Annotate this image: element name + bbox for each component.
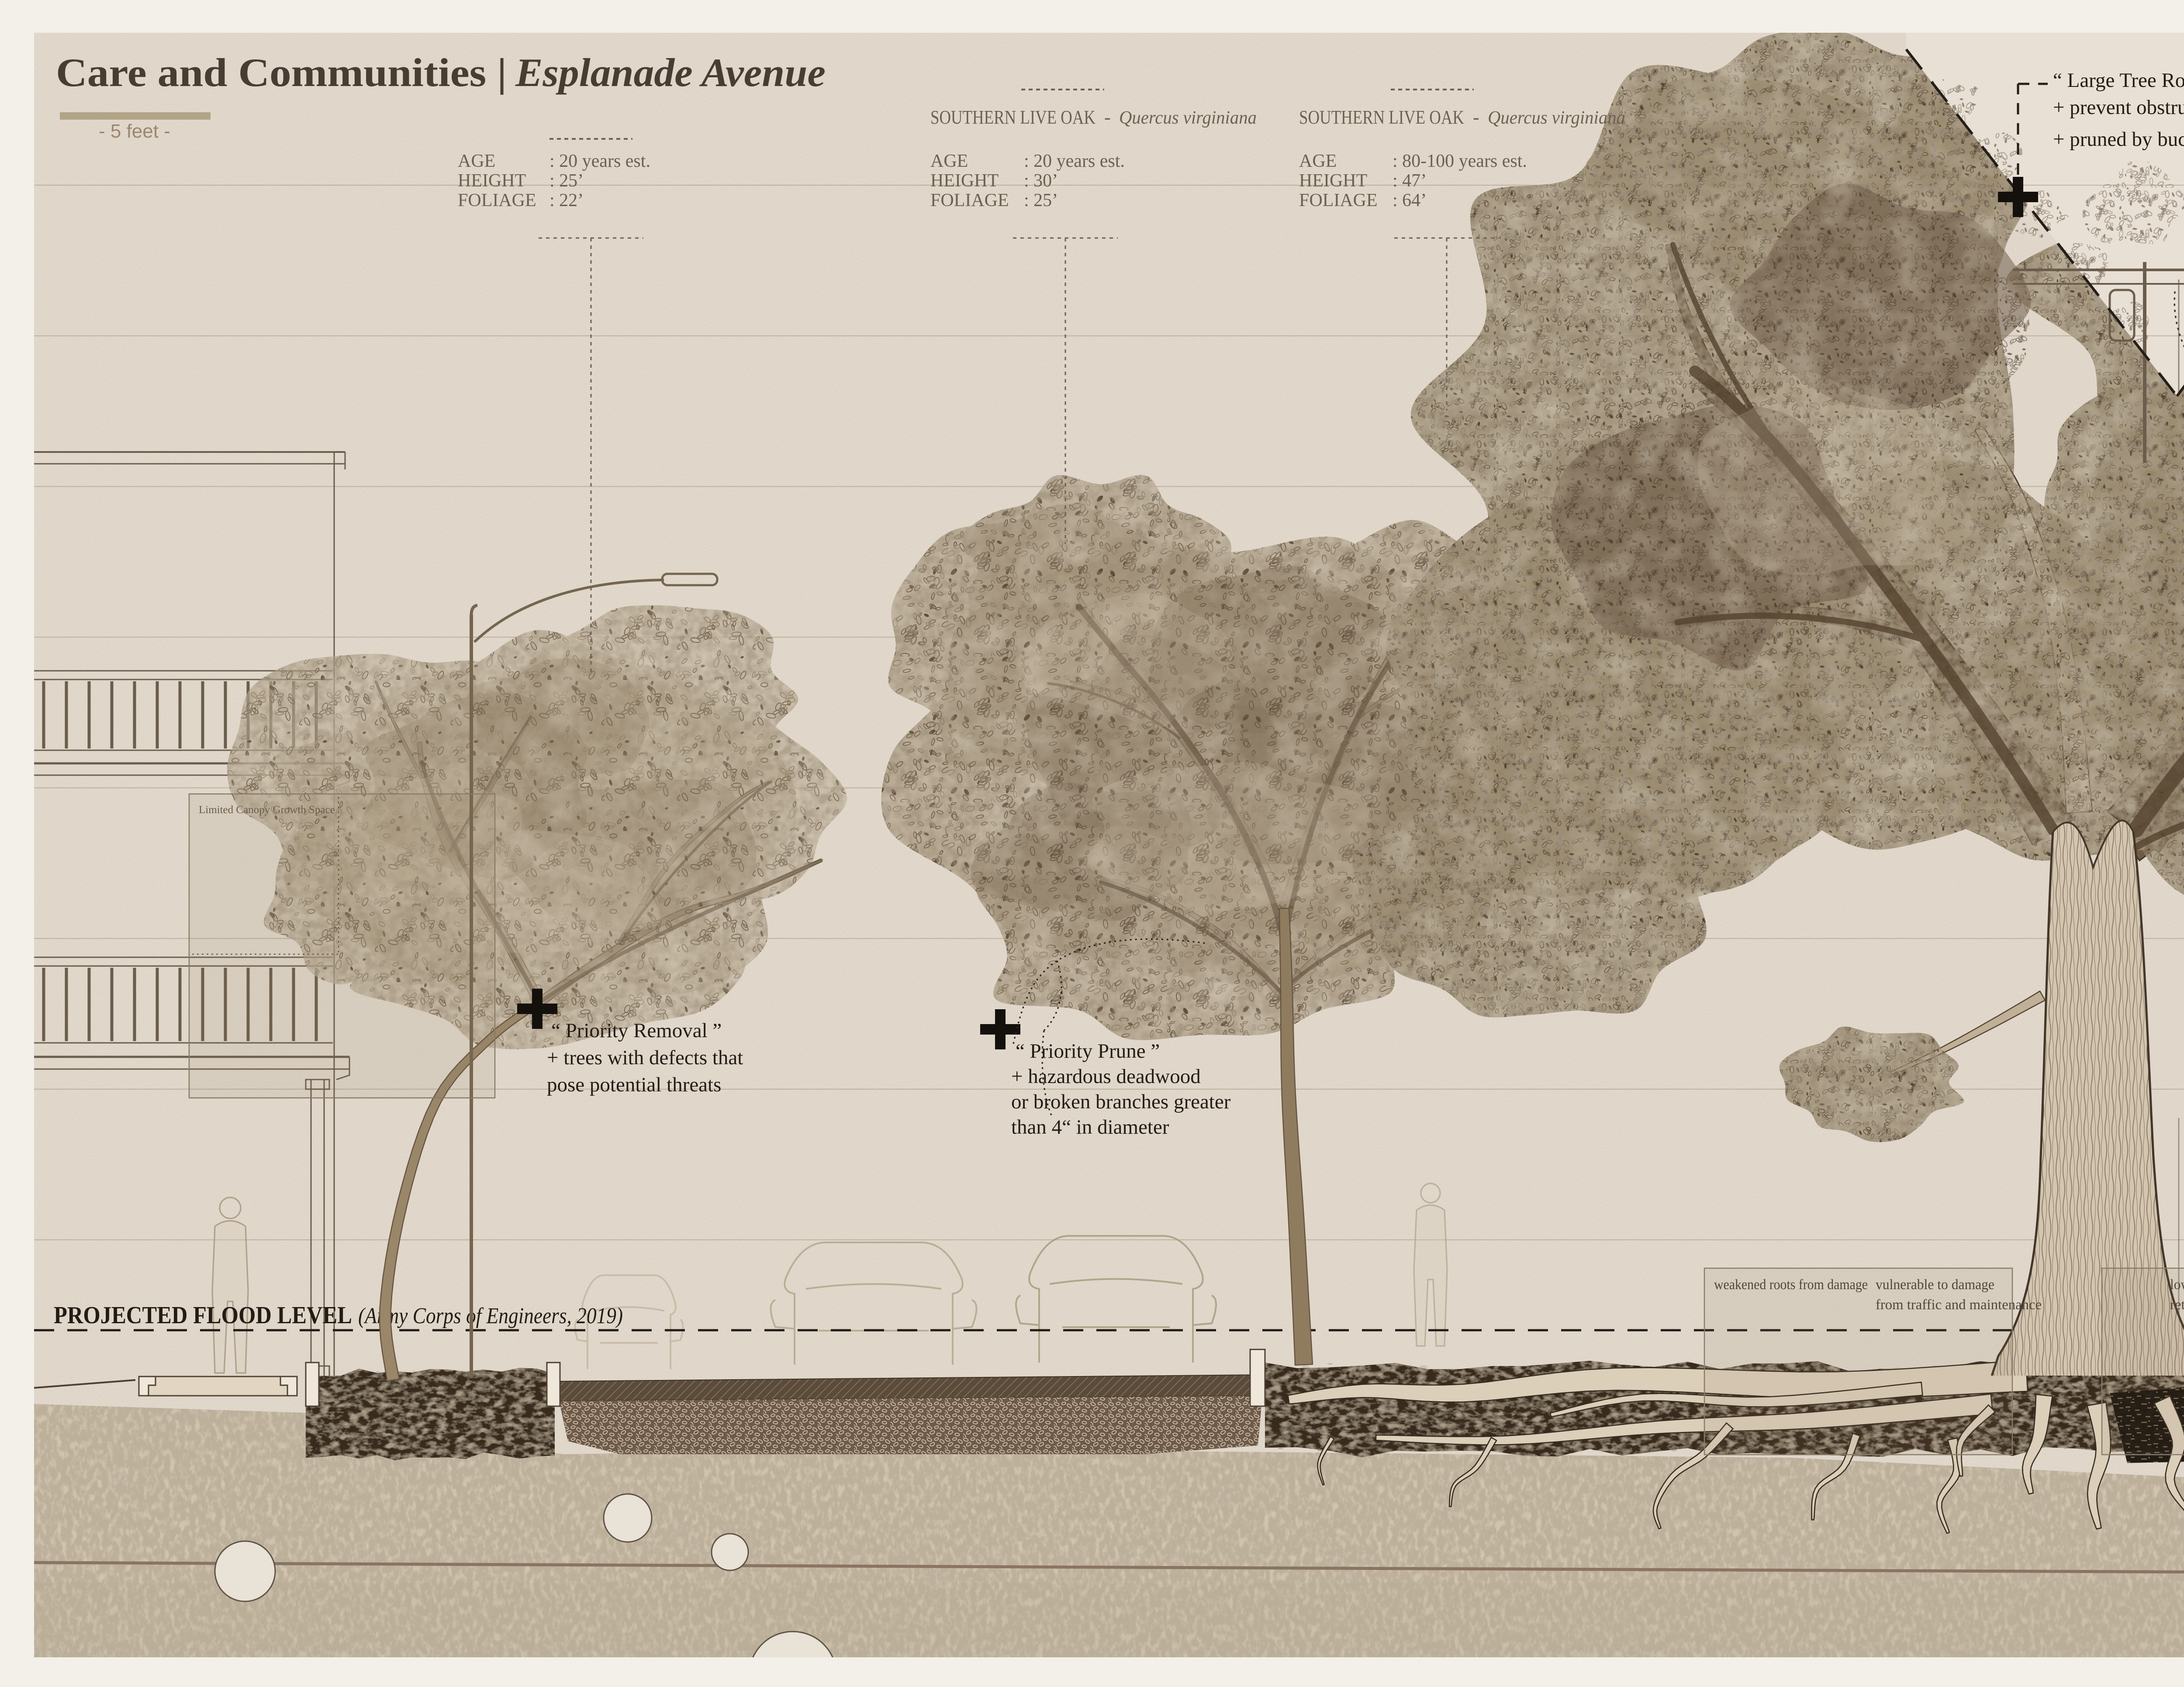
svg-text:: 30’: : 30’ bbox=[1024, 171, 1058, 191]
svg-text:Quercus virginiana: Quercus virginiana bbox=[1488, 108, 1625, 128]
svg-text:: 20 years est.: : 20 years est. bbox=[1024, 151, 1125, 171]
svg-text:or broken branches greater: or broken branches greater bbox=[1011, 1090, 1231, 1113]
svg-text:SOUTHERN LIVE OAK: SOUTHERN LIVE OAK bbox=[1299, 107, 1464, 128]
svg-text:vulnerable to damage: vulnerable to damage bbox=[1876, 1277, 1994, 1293]
svg-text:- 5 feet -: - 5 feet - bbox=[99, 121, 170, 142]
svg-text:+ prevent obstruction of utili: + prevent obstruction of utilities. bbox=[2053, 96, 2184, 119]
svg-text:FOLIAGE: FOLIAGE bbox=[458, 190, 536, 210]
svg-text:+ hazardous deadwood: + hazardous deadwood bbox=[1011, 1065, 1201, 1088]
svg-text:“ Priority Prune ”: “ Priority Prune ” bbox=[1016, 1040, 1160, 1063]
svg-text:HEIGHT: HEIGHT bbox=[1299, 171, 1367, 191]
svg-text:-: - bbox=[1104, 107, 1111, 128]
svg-text:Care and Communities |: Care and Communities | bbox=[56, 50, 507, 95]
svg-text:: 25’: : 25’ bbox=[1024, 190, 1058, 210]
svg-text:HEIGHT: HEIGHT bbox=[458, 171, 526, 191]
svg-text:: 20 years est.: : 20 years est. bbox=[549, 151, 650, 171]
svg-text:PROJECTED FLOOD LEVEL: PROJECTED FLOOD LEVEL bbox=[54, 1302, 352, 1329]
svg-text:: 25’: : 25’ bbox=[549, 171, 584, 191]
svg-text:(Army Corps of Engineers, 2019: (Army Corps of Engineers, 2019) bbox=[358, 1304, 623, 1328]
svg-text:-: - bbox=[1473, 107, 1479, 128]
svg-text:FOLIAGE: FOLIAGE bbox=[930, 190, 1009, 210]
svg-text:Limited Canopy Growth Space: Limited Canopy Growth Space bbox=[199, 804, 335, 816]
svg-text:FOLIAGE: FOLIAGE bbox=[1299, 190, 1378, 210]
svg-text:weakened roots from damage: weakened roots from damage bbox=[1714, 1277, 1868, 1293]
svg-text:AGE: AGE bbox=[458, 151, 495, 171]
svg-text:AGE: AGE bbox=[930, 151, 968, 171]
svg-text:: 64’: : 64’ bbox=[1393, 190, 1427, 210]
svg-text:: 80-100 years est.: : 80-100 years est. bbox=[1393, 151, 1527, 171]
svg-text:from traffic and maintenance: from traffic and maintenance bbox=[1876, 1297, 2042, 1313]
svg-text:“ Priority Removal ”: “ Priority Removal ” bbox=[551, 1019, 722, 1042]
svg-text:HEIGHT: HEIGHT bbox=[930, 171, 999, 191]
svg-text:+ pruned by bucket truck: + pruned by bucket truck bbox=[2053, 128, 2184, 151]
svg-text:Esplanade Avenue: Esplanade Avenue bbox=[515, 50, 826, 95]
svg-text:: 22’: : 22’ bbox=[549, 190, 584, 210]
svg-text:pose potential threats: pose potential threats bbox=[547, 1073, 721, 1096]
svg-text:+ trees with defects that: + trees with defects that bbox=[547, 1046, 743, 1069]
svg-text:lower ability to: lower ability to bbox=[2170, 1277, 2184, 1293]
svg-text:Quercus virginiana: Quercus virginiana bbox=[1119, 108, 1257, 128]
svg-text:SOUTHERN LIVE OAK: SOUTHERN LIVE OAK bbox=[930, 107, 1095, 128]
svg-text:: 47’: : 47’ bbox=[1393, 171, 1427, 191]
svg-text:AGE: AGE bbox=[1299, 151, 1337, 171]
svg-text:retain water: retain water bbox=[2170, 1297, 2184, 1313]
svg-text:“ Large Tree Routine Prune ”: “ Large Tree Routine Prune ” bbox=[2053, 69, 2184, 92]
svg-text:than 4“ in diameter: than 4“ in diameter bbox=[1011, 1116, 1169, 1138]
